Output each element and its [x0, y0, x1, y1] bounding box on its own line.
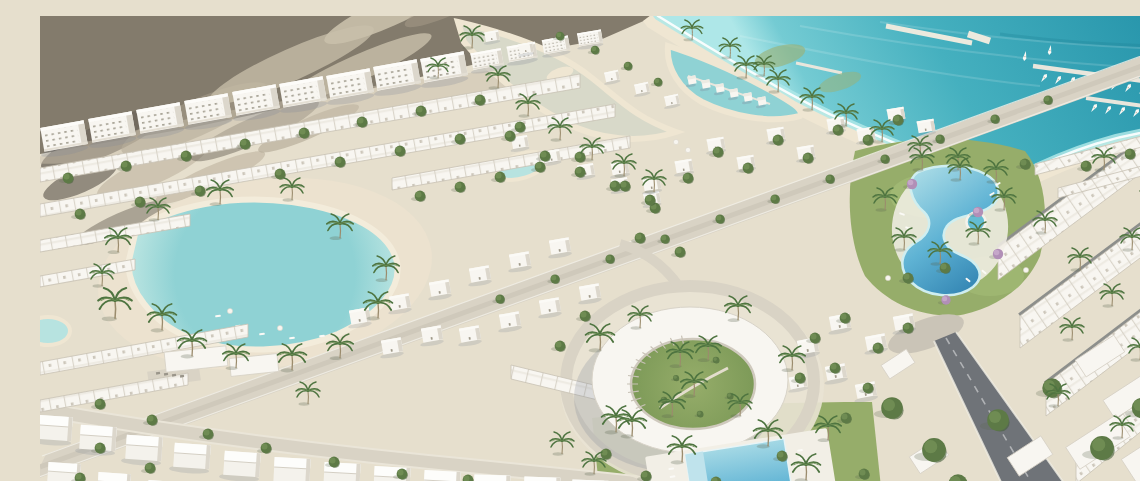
pond: [40, 317, 70, 345]
render-canvas: [40, 16, 1140, 481]
aerial-resort-render: Bird's-eye architectural visualization: …: [40, 16, 1140, 481]
